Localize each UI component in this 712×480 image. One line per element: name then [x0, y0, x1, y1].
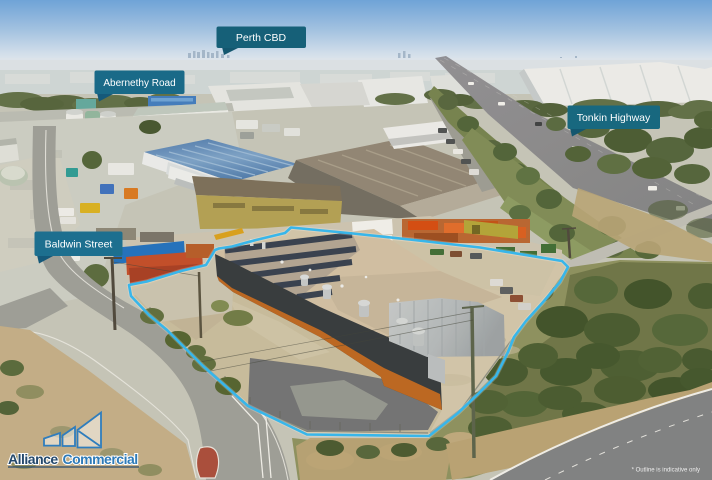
svg-text:Tonkin Highway: Tonkin Highway [577, 112, 651, 124]
svg-text:Abernethy Road: Abernethy Road [103, 78, 175, 89]
svg-text:Perth CBD: Perth CBD [236, 32, 287, 44]
svg-text:Alliance: Alliance [8, 451, 58, 467]
svg-text:Baldwin Street: Baldwin Street [45, 239, 113, 251]
svg-text:Commercial: Commercial [63, 451, 138, 467]
svg-text:* Outline is indicative only: * Outline is indicative only [632, 468, 700, 474]
